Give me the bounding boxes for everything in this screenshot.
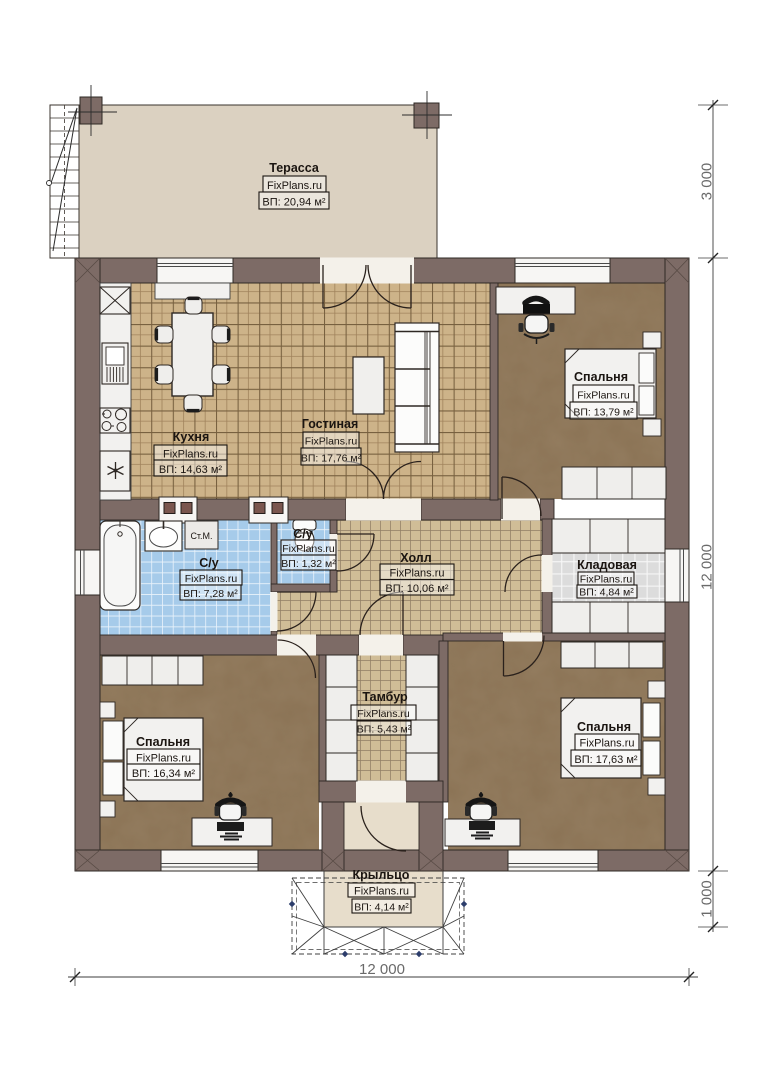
- svg-text:ВП: 13,79 м²: ВП: 13,79 м²: [573, 407, 634, 419]
- svg-text:FixPlans.ru: FixPlans.ru: [163, 449, 218, 461]
- svg-text:FixPlans.ru: FixPlans.ru: [577, 390, 630, 402]
- svg-text:FixPlans.ru: FixPlans.ru: [580, 574, 633, 586]
- svg-text:Холл: Холл: [400, 551, 431, 565]
- svg-text:ВП: 4,84 м²: ВП: 4,84 м²: [579, 587, 634, 599]
- svg-text:С/у: С/у: [199, 556, 219, 570]
- svg-text:ВП: 5,43 м²: ВП: 5,43 м²: [357, 724, 412, 736]
- svg-text:12 000: 12 000: [359, 961, 405, 978]
- svg-text:Спальня: Спальня: [577, 720, 631, 734]
- svg-text:FixPlans.ru: FixPlans.ru: [354, 886, 409, 898]
- svg-text:12 000: 12 000: [699, 544, 716, 590]
- svg-text:ВП: 20,94 м²: ВП: 20,94 м²: [262, 197, 326, 209]
- svg-text:Тамбур: Тамбур: [362, 690, 408, 704]
- svg-text:ВП: 4,14 м²: ВП: 4,14 м²: [354, 902, 409, 914]
- svg-text:Кухня: Кухня: [173, 430, 210, 444]
- svg-text:FixPlans.ru: FixPlans.ru: [305, 436, 358, 448]
- svg-text:Гостиная: Гостиная: [302, 417, 359, 431]
- svg-text:ВП: 10,06 м²: ВП: 10,06 м²: [385, 583, 449, 595]
- svg-text:1 000: 1 000: [699, 880, 716, 918]
- svg-text:3 000: 3 000: [699, 163, 716, 201]
- svg-text:FixPlans.ru: FixPlans.ru: [136, 753, 191, 765]
- svg-text:Кладовая: Кладовая: [577, 558, 637, 572]
- svg-text:Спальня: Спальня: [574, 370, 628, 384]
- svg-text:ВП: 17,76 м²: ВП: 17,76 м²: [301, 453, 362, 465]
- svg-text:С/у: С/у: [293, 527, 313, 541]
- svg-text:Спальня: Спальня: [136, 735, 190, 749]
- svg-text:ВП: 17,63 м²: ВП: 17,63 м²: [574, 754, 638, 766]
- svg-text:FixPlans.ru: FixPlans.ru: [282, 543, 335, 555]
- svg-text:FixPlans.ru: FixPlans.ru: [389, 568, 444, 580]
- svg-text:FixPlans.ru: FixPlans.ru: [579, 738, 634, 750]
- svg-text:ВП: 1,32 м²: ВП: 1,32 м²: [281, 558, 336, 570]
- svg-text:FixPlans.ru: FixPlans.ru: [185, 573, 238, 585]
- svg-text:ВП: 14,63 м²: ВП: 14,63 м²: [159, 464, 223, 476]
- svg-text:ВП: 7,28 м²: ВП: 7,28 м²: [183, 588, 238, 600]
- svg-text:Крыльцо: Крыльцо: [353, 868, 410, 882]
- svg-text:FixPlans.ru: FixPlans.ru: [267, 180, 322, 192]
- svg-text:ВП: 16,34 м²: ВП: 16,34 м²: [132, 768, 196, 780]
- svg-text:Ст.М.: Ст.М.: [190, 531, 212, 541]
- svg-text:FixPlans.ru: FixPlans.ru: [357, 708, 410, 720]
- svg-text:Терасса: Терасса: [269, 161, 320, 175]
